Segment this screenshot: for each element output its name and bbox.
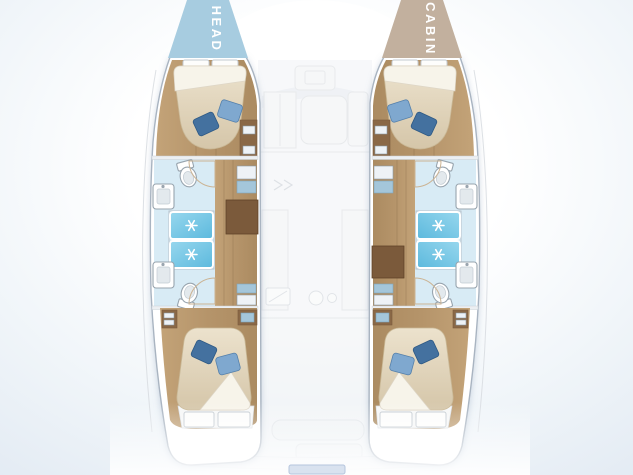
bow-label-head: HEAD bbox=[209, 6, 224, 53]
galley-counter bbox=[342, 210, 368, 310]
swim-platform-davit bbox=[289, 465, 345, 474]
galley-sink-icon bbox=[309, 291, 323, 305]
catamaran-floorplan: HEAD CABIN bbox=[0, 0, 633, 475]
galley-sink-icon bbox=[328, 294, 337, 303]
bow-label-cabin: CABIN bbox=[423, 2, 438, 56]
saloon-table bbox=[301, 96, 347, 144]
port-companionway-steps bbox=[226, 200, 258, 234]
saloon-seat bbox=[348, 92, 368, 146]
roof-hatch bbox=[295, 66, 335, 90]
starboard-companionway-steps bbox=[372, 246, 404, 278]
stern-fade-overlay bbox=[110, 402, 530, 475]
